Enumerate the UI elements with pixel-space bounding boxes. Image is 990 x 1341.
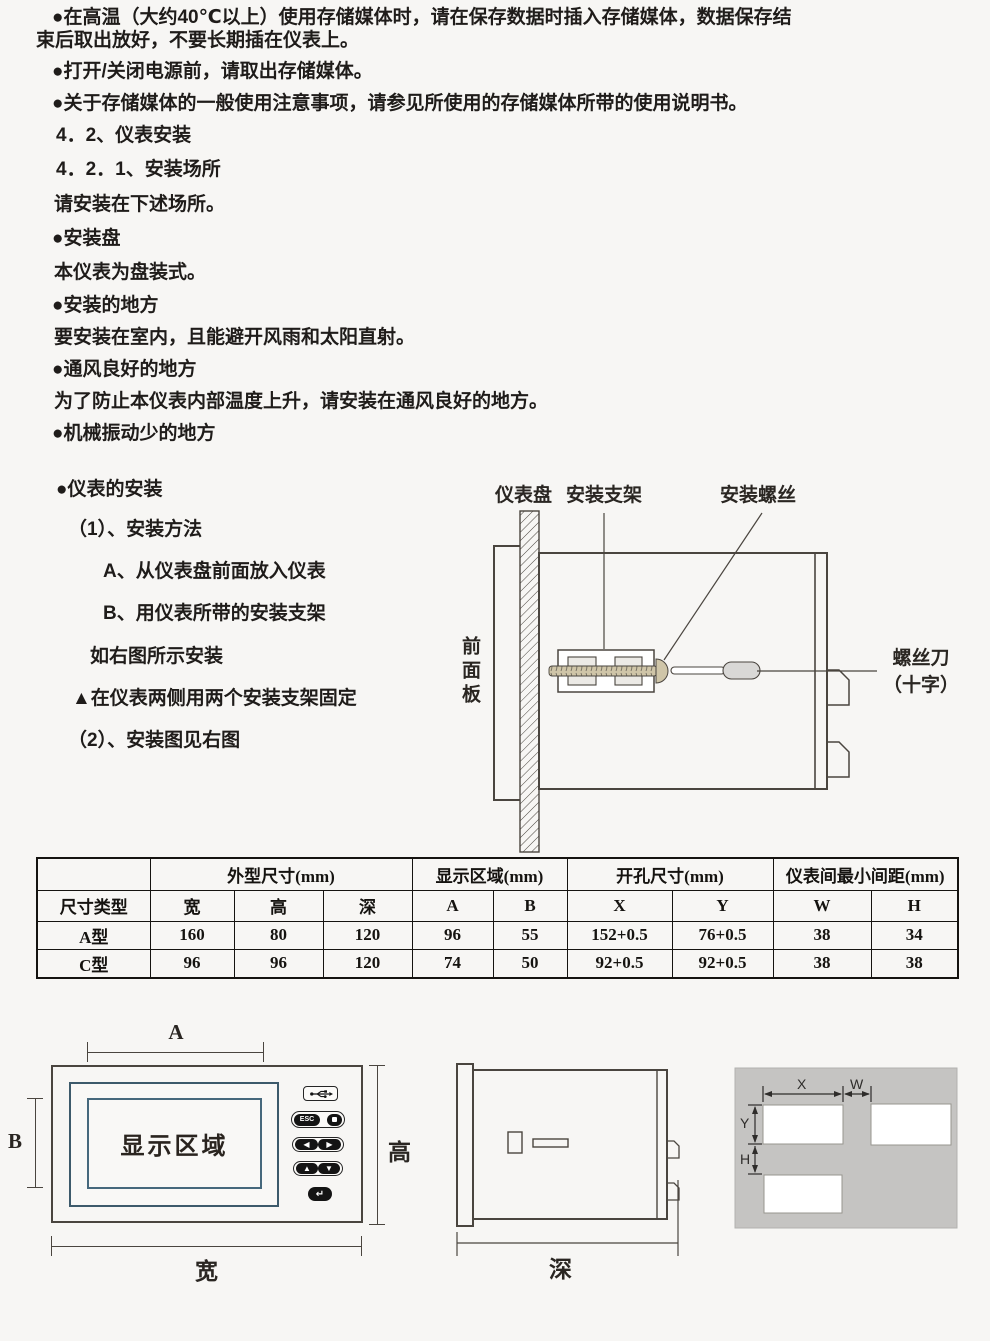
front-bezel [494, 546, 521, 800]
label-screw: 安装螺丝 [720, 480, 796, 507]
bullet-line: ●仪表的安装 [56, 478, 162, 501]
row-label: C型 [37, 949, 150, 978]
group-header-display: 显示区域(mm) [412, 858, 567, 890]
label-screwdriver-line1: 螺丝刀 [876, 643, 966, 670]
cell: 38 [773, 921, 871, 949]
cell: 120 [323, 921, 412, 949]
bullet-line: ●机械振动少的地方 [52, 422, 215, 445]
col-header: 深 [323, 890, 412, 921]
list-item: （2）、安装图见右图 [68, 729, 240, 752]
up-down-button-group: ▲ ▼ [293, 1161, 343, 1176]
enter-button: ↵ [308, 1187, 332, 1201]
display-area-label: 显示区域 [121, 1126, 229, 1161]
side-body [473, 1070, 667, 1219]
dim-label-depth: 深 [549, 1250, 572, 1284]
subsection-heading: 4．2．1、安装场所 [56, 158, 221, 181]
display-mode-button [327, 1114, 342, 1126]
col-header: B [493, 890, 567, 921]
cell: 38 [773, 949, 871, 978]
label-screwdriver-line2: （十字） [876, 670, 966, 697]
note-line: ●在高温（大约40℃以上）使用存储媒体时，请在保存数据时插入存储媒体，数据保存结 [52, 6, 792, 29]
usb-icon [309, 1089, 333, 1099]
bullet-line: ●安装盘 [52, 227, 120, 250]
dim-label-width: 宽 [195, 1252, 218, 1286]
esc-button: ESC [294, 1114, 320, 1126]
cell: 34 [871, 921, 958, 949]
note-line: ●打开/关闭电源前，请取出存储媒体。 [52, 60, 373, 83]
body-line: 要安装在室内，且能避开风雨和太阳直射。 [54, 326, 415, 349]
col-header: 宽 [150, 890, 234, 921]
col-header: 尺寸类型 [37, 890, 150, 921]
dim-label-b: B [8, 1129, 22, 1154]
body-line: 本仪表为盘装式。 [54, 261, 206, 284]
screwdriver-shaft [671, 667, 725, 674]
note-line: ●关于存储媒体的一般使用注意事项，请参见所使用的存储媒体所带的使用说明书。 [52, 92, 747, 115]
label-screwdriver: 螺丝刀 （十字） [876, 643, 966, 697]
usb-port-button [303, 1086, 338, 1101]
list-item: B、用仪表所带的安装支架 [103, 602, 326, 625]
list-item: ▲在仪表两侧用两个安装支架固定 [72, 687, 357, 710]
cell: 96 [412, 921, 493, 949]
body-line: 请安装在下述场所。 [54, 193, 225, 216]
section-heading: 4．2、仪表安装 [56, 124, 191, 147]
rear-hook [828, 742, 849, 777]
cell: 50 [493, 949, 567, 978]
screwdriver-handle [723, 662, 760, 679]
table-row: C型 96 96 120 74 50 92+0.5 92+0.5 38 38 [37, 949, 958, 978]
group-header-outline: 外型尺寸(mm) [150, 858, 412, 890]
table-group-header-row: 外型尺寸(mm) 显示区域(mm) 开孔尺寸(mm) 仪表间最小间距(mm) [37, 858, 958, 890]
table-subheader-row: 尺寸类型 宽 高 深 A B X Y W H [37, 890, 958, 921]
group-header-cutout: 开孔尺寸(mm) [567, 858, 773, 890]
down-arrow-button: ▼ [318, 1163, 340, 1174]
cell: 92+0.5 [672, 949, 773, 978]
cell: 160 [150, 921, 234, 949]
dim-label-y: Y [740, 1115, 749, 1131]
cell: 152+0.5 [567, 921, 672, 949]
label-panel: 仪表盘 [495, 480, 552, 507]
cutout-hole [763, 1105, 843, 1144]
col-header: 高 [234, 890, 323, 921]
dimensions-table: 外型尺寸(mm) 显示区域(mm) 开孔尺寸(mm) 仪表间最小间距(mm) 尺… [36, 857, 959, 979]
list-item: （1）、安装方法 [68, 518, 202, 541]
table-row: A型 160 80 120 96 55 152+0.5 76+0.5 38 34 [37, 921, 958, 949]
up-arrow-button: ▲ [296, 1163, 318, 1174]
dim-label-x: X [797, 1076, 806, 1092]
col-header: Y [672, 890, 773, 921]
rear-hook [828, 670, 849, 705]
panel-hatch [520, 511, 539, 852]
manual-page: { "colors": { "page_bg": "#f7f6f4", "lin… [0, 0, 990, 1341]
list-item: A、从仪表盘前面放入仪表 [103, 560, 326, 583]
right-arrow-button: ▶ [318, 1139, 341, 1150]
dim-label-h: H [740, 1151, 750, 1167]
dim-label-a: A [166, 1020, 186, 1045]
bullet-line: ●安装的地方 [52, 294, 158, 317]
left-right-button-group: ◀ ▶ [292, 1137, 344, 1152]
cutout-hole [764, 1175, 842, 1213]
cell: 96 [234, 949, 323, 978]
cell: 120 [323, 949, 412, 978]
col-header: X [567, 890, 672, 921]
cell: 55 [493, 921, 567, 949]
group-header-spacing: 仪表间最小间距(mm) [773, 858, 958, 890]
cell: 76+0.5 [672, 921, 773, 949]
display-area: 显示区域 [87, 1098, 262, 1189]
cell: 96 [150, 949, 234, 978]
row-label: A型 [37, 921, 150, 949]
side-front-bezel [457, 1064, 473, 1226]
cell: 80 [234, 921, 323, 949]
bullet-line: ●通风良好的地方 [52, 358, 196, 381]
mounting-screw [549, 666, 657, 676]
cell: 92+0.5 [567, 949, 672, 978]
note-line: 束后取出放好，不要长期插在仪表上。 [36, 29, 359, 52]
table-corner-cell [37, 858, 150, 890]
col-header: H [871, 890, 958, 921]
list-item: 如右图所示安装 [90, 645, 223, 668]
side-hook [668, 1141, 679, 1158]
col-header: A [412, 890, 493, 921]
dim-label-w: W [850, 1076, 863, 1092]
cell: 74 [412, 949, 493, 978]
cell: 38 [871, 949, 958, 978]
left-arrow-button: ◀ [295, 1139, 318, 1150]
label-front-panel: 前面板 [456, 636, 483, 708]
col-header: W [773, 890, 871, 921]
cutout-hole [871, 1104, 951, 1145]
esc-display-button-group: ESC [291, 1111, 345, 1128]
dim-label-height: 高 [388, 1133, 411, 1167]
side-hook [668, 1183, 679, 1200]
body-line: 为了防止本仪表内部温度上升，请安装在通风良好的地方。 [54, 390, 548, 413]
label-bracket: 安装支架 [566, 480, 642, 507]
